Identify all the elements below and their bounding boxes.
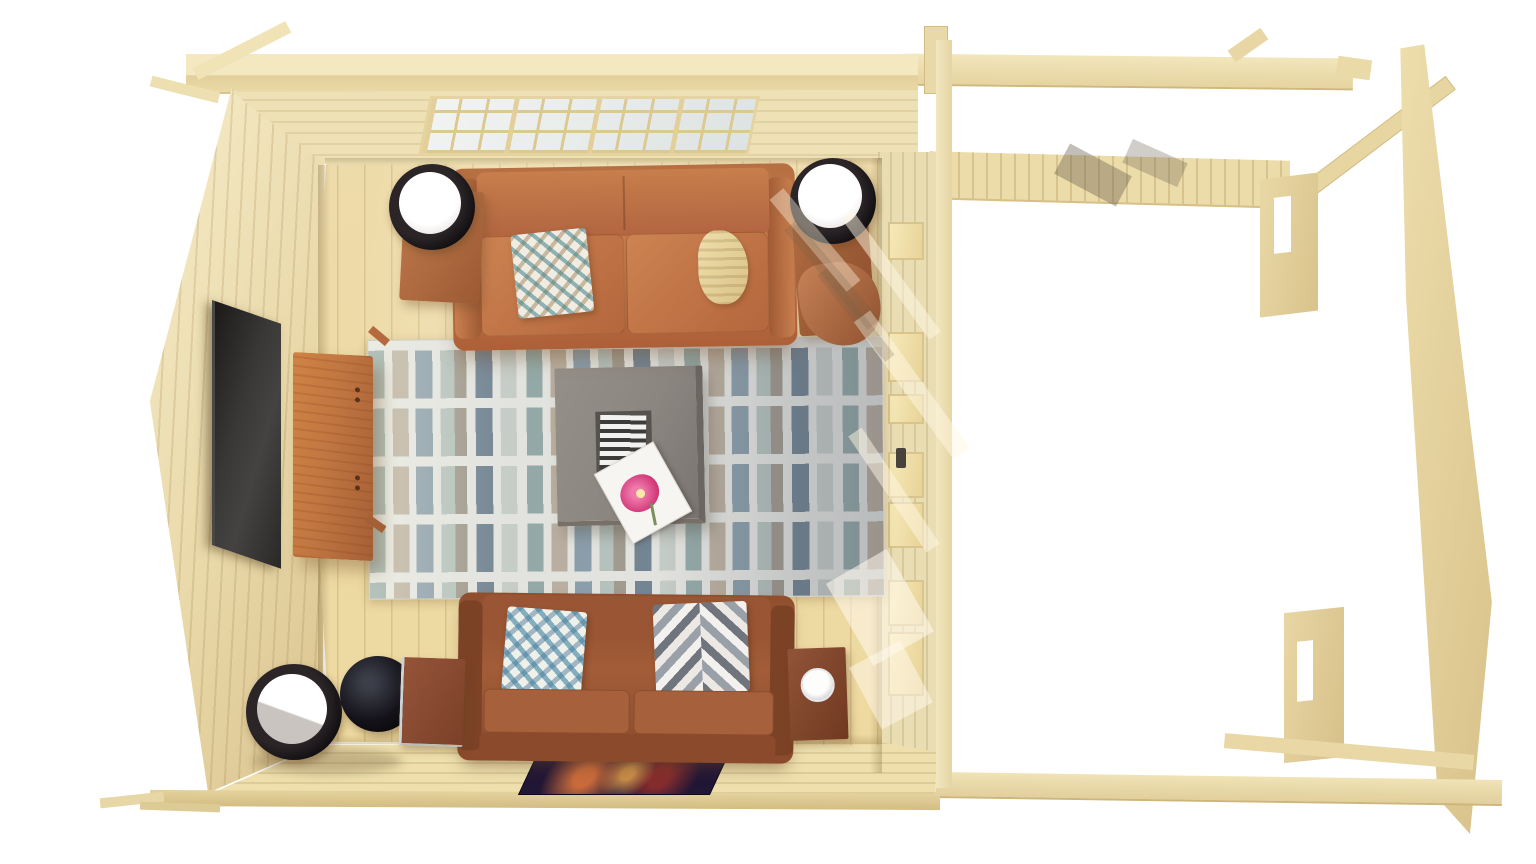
sofa-front-band: [479, 732, 775, 759]
upper-sofa: [450, 163, 797, 351]
console-knob: [355, 475, 360, 480]
right-wall-outer-edge: [936, 40, 952, 788]
cabin-top-view-render: [0, 0, 1536, 864]
media-console: [293, 352, 373, 561]
diamond-pattern-pillow: [510, 228, 594, 319]
door-glass-pane: [888, 580, 924, 626]
door-glass-pane: [888, 332, 924, 382]
post-slot: [1274, 196, 1291, 254]
chevron-pillow: [652, 601, 750, 695]
console-knob: [355, 485, 360, 490]
teal-diamond-pillow: [501, 606, 587, 696]
transom-window: [418, 96, 760, 156]
cylinder-lamp-upper-left: [389, 164, 475, 250]
door-handle: [896, 448, 906, 468]
back-seam: [623, 176, 626, 230]
wall-floor-shadow: [325, 158, 882, 166]
white-plate: [800, 667, 835, 702]
pergola-top-beam: [905, 54, 1353, 91]
console-knob: [355, 397, 360, 402]
pergola-corner-post-top: [1260, 172, 1318, 317]
door-glass-pane: [888, 632, 924, 696]
lower-sofa: [457, 592, 795, 764]
eave-beam-stub: [140, 802, 220, 813]
pergola-gable-edge-plank: [1392, 42, 1496, 842]
coffee-table: [554, 365, 705, 526]
side-table-lower-left: [398, 657, 465, 747]
roof-eave-top: [186, 54, 918, 94]
lamp-glow: [798, 164, 862, 228]
floor-lamp-cylinder: [246, 664, 342, 760]
flower-cover-stem: [650, 503, 657, 525]
pergola-bottom-beam: [936, 772, 1502, 806]
wall-tv: [212, 300, 281, 569]
pergola-joist-band: [930, 151, 1290, 208]
top-wall: [232, 88, 918, 166]
sofa-seat-cushion: [633, 690, 773, 735]
sofa-back-cushions: [477, 167, 770, 238]
console-knob: [355, 387, 360, 392]
sofa-seat-cushion: [483, 689, 629, 735]
floor-lamp-glow: [257, 674, 327, 744]
door-glass-pane: [888, 222, 924, 260]
door-glass-pane: [888, 452, 924, 498]
side-table-lower-right: [787, 647, 848, 741]
right-wall: [878, 152, 936, 778]
door-glass-pane: [888, 502, 924, 548]
sofa-seat-cushion: [626, 231, 770, 333]
lamp-glow: [399, 172, 461, 234]
cylinder-lamp-upper-right: [790, 158, 876, 244]
door-glass-pane: [888, 394, 924, 424]
post-slot: [1297, 640, 1313, 702]
